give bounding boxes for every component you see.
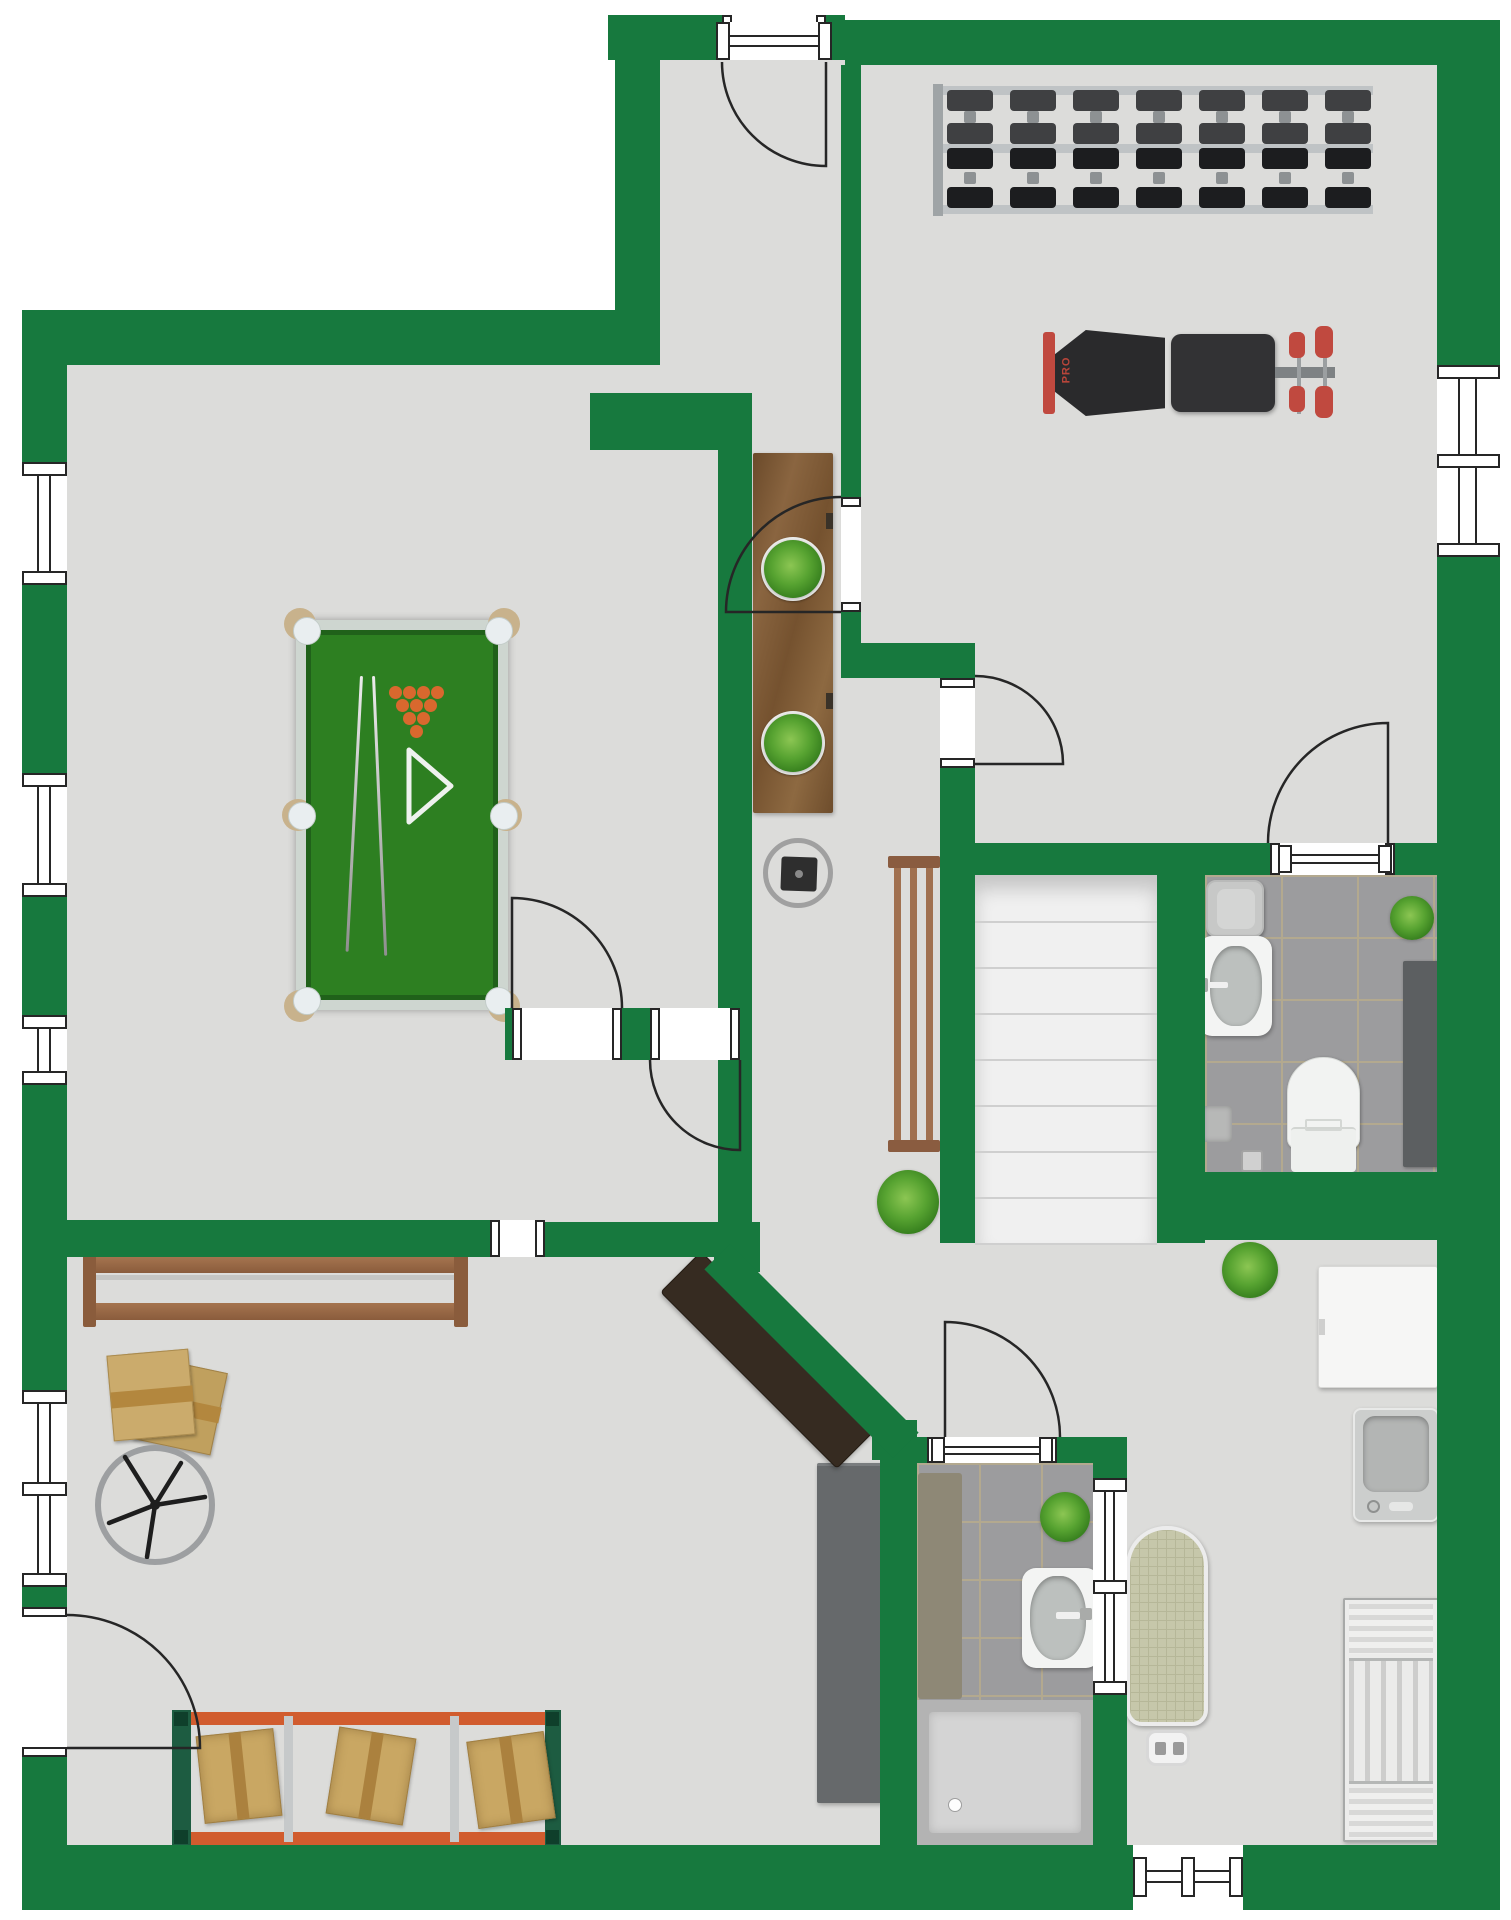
stairs [975,875,1157,1243]
dumbbell-rack [933,84,1373,216]
window [1133,1857,1243,1897]
wall [22,365,67,462]
wall [22,310,615,365]
wall [1093,1437,1127,1478]
cardboard-box [326,1726,417,1825]
cabinet-top [1217,889,1255,929]
window-frame-cap [22,462,67,476]
dumbbell [947,90,993,144]
bench-brand-label: PRO [1060,357,1072,384]
wall [845,20,1437,65]
wall [1093,1695,1127,1845]
window-frame-cap [716,22,730,60]
dumbbell [1325,90,1371,144]
rack-divider [284,1716,293,1842]
window [22,1390,67,1587]
wall [740,1008,752,1060]
window-glass-line [49,779,51,891]
sink-tap [1080,1608,1092,1620]
floor-drain [1241,1150,1263,1172]
pool-ball [424,699,437,712]
window-frame-cap [1437,543,1500,557]
bathroom-sink [1198,936,1272,1036]
dumbbell [1199,148,1245,208]
speaker-dot [795,870,803,878]
toilet-paper-holder [1203,1106,1232,1142]
window-glass-line [49,468,51,579]
stair-tread [975,1197,1157,1199]
shower-room-sink [1022,1568,1100,1668]
window-glass-line [1284,862,1386,864]
shower [917,1700,1093,1845]
wall [841,65,861,497]
wall [880,1437,917,1845]
dumbbell [1010,90,1056,144]
sink-basin [1363,1416,1429,1492]
utility-sink [1353,1408,1439,1522]
stair-tread [975,1013,1157,1015]
stair-tread [975,1151,1157,1153]
window-frame-cap [1181,1857,1195,1897]
sink-knob [1367,1500,1380,1513]
window-frame-cap [22,1390,67,1404]
floor-plan: PRO [0,0,1511,1920]
wall [22,1845,1133,1910]
window-frame-cap [818,22,832,60]
bench-backrest: PRO [1055,330,1165,416]
rack-section [1349,1788,1433,1838]
triangle-rack [405,746,457,830]
window [1093,1478,1127,1695]
rack-section [1349,1658,1433,1784]
wall [22,1757,67,1845]
bench-upright [1043,332,1055,414]
pool-ball [403,712,416,725]
window-frame-cap [1093,1478,1127,1492]
window-frame-cap [1093,1580,1127,1594]
plant-pot [761,711,825,775]
potted-plant [1390,896,1434,940]
wall [917,1437,927,1463]
leg-roller [1289,386,1305,412]
wall [940,768,975,1243]
rail-bar [83,1257,467,1273]
bench-cap [888,856,940,868]
rack-section [1349,1604,1433,1654]
pool-ball [431,686,444,699]
window-frame-cap [1039,1437,1053,1463]
sink-spout [1056,1612,1080,1619]
window-frame-cap [1093,1681,1127,1695]
dumbbell [1199,90,1245,144]
potted-plant [1222,1242,1278,1298]
ironing-board [1126,1526,1208,1770]
wall [718,450,752,1222]
window [716,22,832,60]
door-jamb [535,1220,545,1257]
door-jamb [730,1008,740,1060]
window-frame-cap [1133,1857,1147,1897]
window-frame-cap [1437,365,1500,379]
window [22,462,67,585]
wall [590,393,752,450]
dumbbell [1136,148,1182,208]
bench-slat [910,868,917,1140]
rail-post [83,1253,96,1327]
storage-rack [172,1710,560,1848]
door-jamb [512,1008,522,1060]
bench-slat [894,868,901,1140]
wall [22,1587,67,1607]
door-opening [841,497,861,612]
dumbbell [1010,148,1056,208]
window-glass-line [722,45,826,47]
board-handle [1146,1730,1190,1766]
leg-roller [1315,386,1333,418]
shower-tray [929,1712,1081,1833]
window-frame-cap [22,571,67,585]
window [931,1437,1053,1463]
dumbbell-row [947,90,1371,144]
window-glass-line [37,779,39,891]
wall [545,1222,717,1257]
pool-table [296,620,508,1010]
plant-pot [761,537,825,601]
hall-bench [888,856,940,1152]
pool-ball [396,699,409,712]
leg-roller [1289,332,1305,358]
plywood-boards [110,1348,240,1464]
door-opening [22,1607,67,1757]
weight-bench: PRO [1043,326,1345,420]
rail-shadow [87,1275,463,1280]
potted-plant [1040,1492,1090,1542]
cardboard-box [196,1728,283,1824]
window-glass-line [37,468,39,579]
stair-tread [975,1105,1157,1107]
door-jamb [22,1607,67,1617]
door-opening [650,1008,740,1060]
window-glass-line [1284,854,1386,856]
bench-cap [888,1140,940,1152]
wall [615,15,660,365]
dumbbell [1262,148,1308,208]
wall [22,897,67,1015]
rack-beam [176,1712,556,1725]
window-frame-cap [1278,845,1292,873]
cabinet-handle [1319,1319,1325,1335]
window [1278,845,1392,873]
bench-slat [926,868,933,1140]
door-jamb [22,1747,67,1757]
dumbbell [1136,90,1182,144]
wall [505,1008,512,1060]
window-frame-cap [22,1573,67,1587]
toilet-tank [1291,1127,1356,1172]
pool-ball [410,725,423,738]
window-frame-cap [22,1482,67,1496]
stair-tread [975,967,1157,969]
door-jamb [612,1008,622,1060]
window-frame-cap [931,1437,945,1463]
bench-seat [1171,334,1275,412]
pool-ball [410,699,423,712]
door-jamb [940,678,975,688]
sideboard-handle [826,513,833,529]
tall-cabinet [817,1463,883,1803]
window-frame-cap [22,1015,67,1029]
door-jamb [841,497,861,507]
door-jamb [940,758,975,768]
potted-plant [764,714,822,772]
wall-speaker [763,838,833,908]
pool-ball [403,686,416,699]
wall [975,843,1270,875]
window-frame-cap [1229,1857,1243,1897]
pool-ball [417,712,430,725]
window-glass-line [722,35,826,37]
rail-post [454,1253,468,1327]
dumbbell-row [947,148,1371,208]
window [22,1015,67,1085]
pool-ball [389,686,402,699]
wardrobe-rail [83,1253,469,1327]
wall [841,643,975,678]
board [106,1349,195,1442]
wall [1243,1845,1500,1910]
stair-tread [975,1059,1157,1061]
wall [22,1085,67,1390]
toilet [1287,1057,1360,1172]
wall [67,1220,490,1257]
window [1437,365,1500,557]
sideboard [753,453,833,813]
door-jamb [490,1220,500,1257]
window-frame-cap [22,1071,67,1085]
stair-tread [975,1243,1157,1245]
rack-beam [176,1832,556,1845]
sideboard-handle [826,693,833,709]
window-glass-line [937,1446,1047,1448]
rail-bar [87,1303,459,1320]
door-opening [490,1220,545,1257]
window-frame-cap [22,773,67,787]
wall [622,1008,650,1060]
door-opening [940,678,975,768]
window-frame-cap [1378,845,1392,873]
dumbbell [1262,90,1308,144]
cardboard-box [466,1731,555,1829]
potted-plant [877,1170,939,1234]
toilet-seam [1305,1119,1342,1131]
wall [1057,1437,1093,1463]
wall [1437,20,1500,365]
wall [1157,1172,1440,1240]
bath-mat-khaki [918,1473,962,1699]
stair-tread [975,921,1157,923]
wall [1437,557,1500,1910]
pool-balls [296,620,508,1010]
door-opening [512,1008,622,1060]
window-frame-cap [1437,454,1500,468]
rack-post [933,84,943,216]
bathroom-cabinet [1206,880,1264,937]
dumbbell [1073,148,1119,208]
potted-plant [764,540,822,598]
shower-drain [948,1798,962,1812]
rack-end-frame [172,1710,191,1847]
window [22,773,67,897]
rack-divider [450,1716,459,1842]
dumbbell [1325,148,1371,208]
dumbbell [1073,90,1119,144]
dumbbell [947,148,993,208]
pool-ball [417,686,430,699]
window-frame-cap [22,883,67,897]
clothes-airer [95,1445,215,1565]
window-glass-line [937,1453,1047,1455]
sink-spout [1208,982,1228,988]
wall [22,585,67,773]
wall [841,612,861,643]
door-jamb [650,1008,660,1060]
drying-rack [1343,1598,1439,1842]
door-jamb [841,602,861,612]
wall [1395,843,1437,875]
leg-roller [1315,326,1333,358]
white-cabinet [1318,1266,1438,1388]
sink-handle [1389,1502,1413,1511]
board-top [1126,1526,1208,1726]
bath-mat [1403,961,1439,1167]
